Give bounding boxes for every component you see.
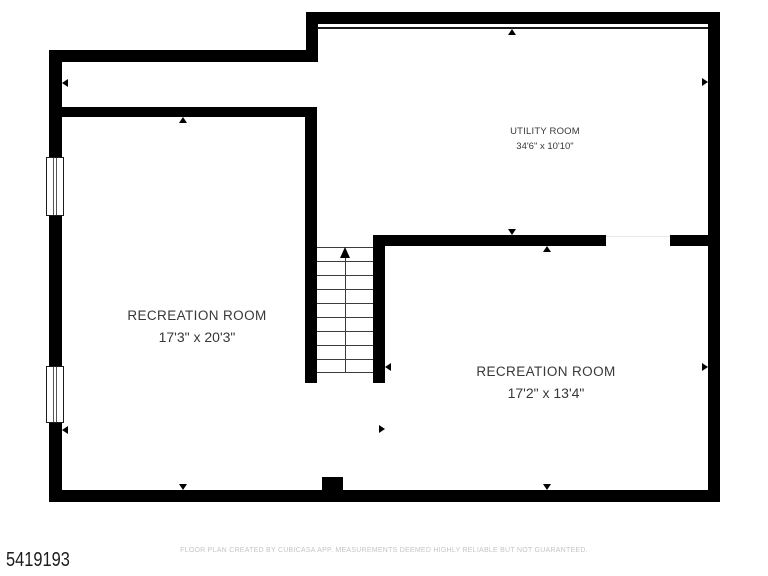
room-name: RECREATION ROOM (426, 364, 666, 379)
measure-tick-up-icon (179, 117, 187, 123)
measure-tick-right-icon (702, 78, 708, 86)
wall-top-right (306, 12, 720, 24)
room-name: UTILITY ROOM (445, 126, 645, 137)
measure-tick-left-icon (385, 363, 391, 371)
window-pane-line (53, 367, 54, 422)
window-pane-line (56, 158, 57, 215)
measure-tick-left-icon (62, 426, 68, 434)
window-upper (46, 157, 64, 216)
listing-id: 5419193 (6, 549, 70, 572)
measure-tick-down-icon (508, 229, 516, 235)
room-dimensions: 17'2" x 13'4" (426, 385, 666, 401)
room-dimensions: 17'3" x 20'3" (77, 329, 317, 345)
chimney-bump (322, 477, 343, 490)
wall-middle-right-segment (670, 235, 708, 246)
measure-tick-down-icon (543, 484, 551, 490)
door-opening (606, 236, 670, 237)
wall-recreation-left-top (62, 107, 317, 117)
room-dimensions: 34'6" x 10'10" (445, 141, 645, 152)
window-pane-line (53, 158, 54, 215)
floor-plan: UTILITY ROOM 34'6" x 10'10" RECREATION R… (0, 0, 768, 576)
wall-middle-left-segment (373, 235, 606, 246)
stairs-up-arrow-icon (340, 247, 350, 258)
wall-left-middle (49, 216, 62, 366)
measure-tick-right-icon (702, 363, 708, 371)
wall-top-left (49, 50, 318, 62)
room-name: RECREATION ROOM (77, 308, 317, 323)
watermark-text: FLOOR PLAN CREATED BY CUBICASA APP. MEAS… (0, 547, 768, 554)
stair-direction-line (345, 258, 346, 372)
window-lower (46, 366, 64, 423)
room-label-recreation-right: RECREATION ROOM 17'2" x 13'4" (426, 364, 666, 401)
stair-tread (317, 372, 373, 373)
wall-right (708, 12, 720, 502)
window-pane-line (56, 367, 57, 422)
measure-tick-up-icon (508, 29, 516, 35)
wall-left-upper (49, 50, 62, 157)
room-label-utility: UTILITY ROOM 34'6" x 10'10" (445, 126, 645, 152)
measure-tick-left-icon (62, 79, 68, 87)
room-label-recreation-left: RECREATION ROOM 17'3" x 20'3" (77, 308, 317, 345)
measure-tick-up-icon (543, 246, 551, 252)
measure-tick-right-icon (379, 425, 385, 433)
wall-bottom (49, 490, 720, 502)
measure-tick-down-icon (179, 484, 187, 490)
wall-stairs-right (373, 238, 385, 383)
